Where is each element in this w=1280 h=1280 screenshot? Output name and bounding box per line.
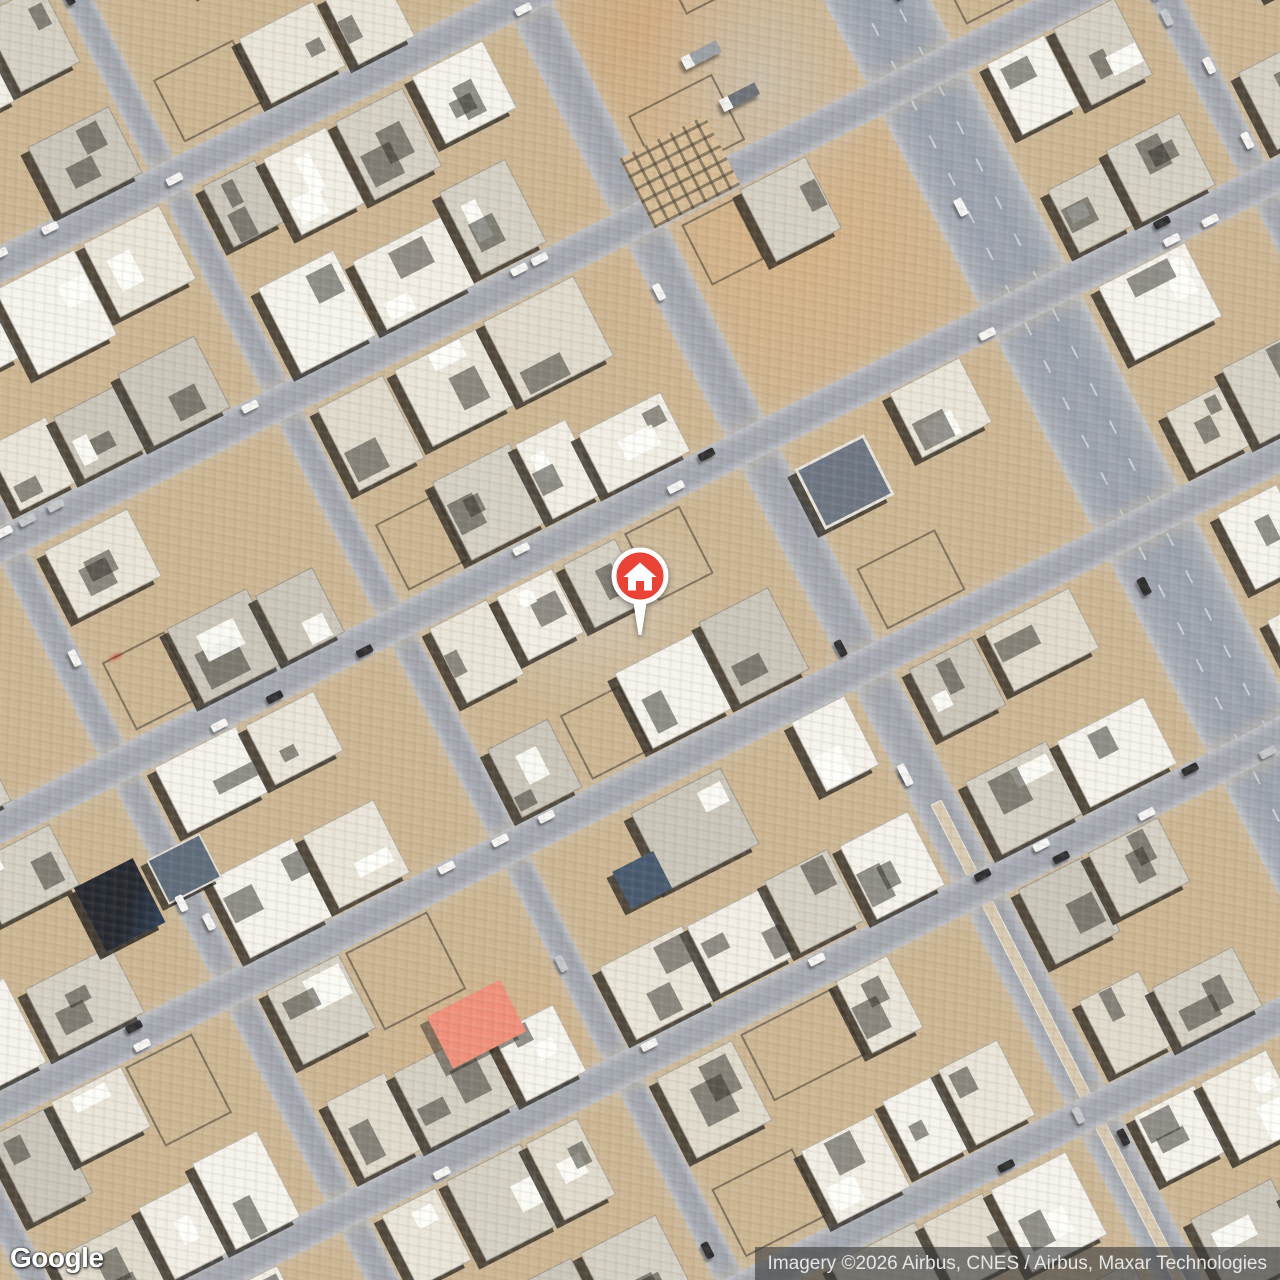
imagery-texture xyxy=(0,0,1280,1280)
google-logo[interactable]: Google xyxy=(10,1242,103,1274)
imagery-attribution: Imagery ©2026 Airbus, CNES / Airbus, Max… xyxy=(755,1247,1280,1280)
map-viewport[interactable]: Google Imagery ©2026 Airbus, CNES / Airb… xyxy=(0,0,1280,1280)
place-marker[interactable] xyxy=(608,546,672,638)
satellite-imagery-layer xyxy=(0,0,1280,1280)
place-pin-icon xyxy=(608,546,672,638)
